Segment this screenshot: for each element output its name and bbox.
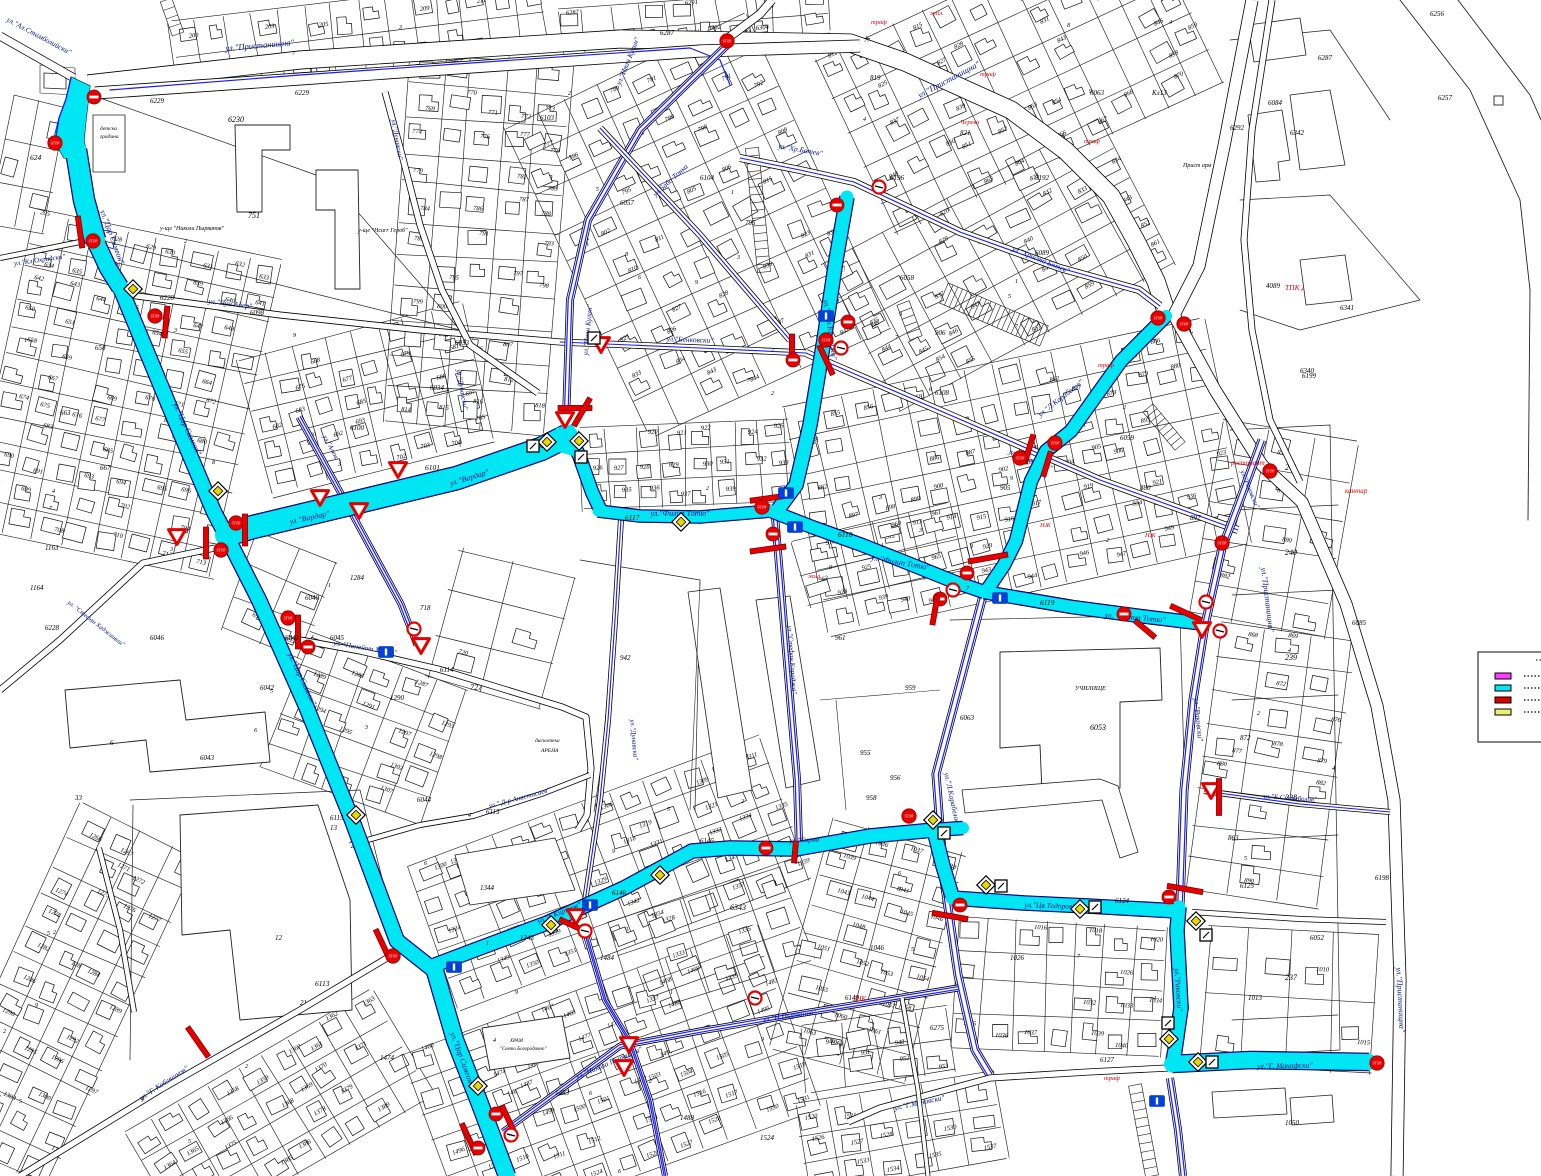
svg-text:6053: 6053 bbox=[1090, 723, 1106, 732]
svg-text:929: 929 bbox=[669, 461, 680, 469]
svg-text:1050: 1050 bbox=[1285, 1119, 1300, 1127]
svg-text:786: 786 bbox=[473, 205, 484, 213]
svg-text:718: 718 bbox=[420, 604, 431, 612]
svg-text:897: 897 bbox=[1190, 514, 1201, 522]
svg-text:787: 787 bbox=[519, 196, 530, 204]
svg-text:4: 4 bbox=[863, 116, 866, 123]
svg-text:4: 4 bbox=[1332, 765, 1335, 772]
svg-text:906: 906 bbox=[935, 329, 946, 337]
svg-text:3: 3 bbox=[169, 547, 173, 553]
svg-text:799: 799 bbox=[413, 298, 424, 306]
svg-text:6: 6 bbox=[618, 1169, 621, 1175]
svg-text:928: 928 bbox=[640, 463, 651, 471]
svg-text:3: 3 bbox=[173, 328, 177, 334]
svg-text:769: 769 bbox=[425, 105, 436, 113]
svg-text:НЖ: НЖ bbox=[1144, 532, 1157, 539]
svg-text:6: 6 bbox=[638, 275, 641, 281]
svg-text:6291: 6291 bbox=[685, 0, 699, 7]
svg-text:ул."Цв.Тодоров": ул."Цв.Тодоров" bbox=[1023, 900, 1076, 911]
svg-text:STOP: STOP bbox=[1016, 457, 1025, 461]
svg-text:6: 6 bbox=[110, 739, 114, 747]
svg-text:1: 1 bbox=[486, 941, 489, 947]
svg-text:8: 8 bbox=[1067, 23, 1070, 29]
svg-text:1483: 1483 bbox=[555, 1089, 570, 1097]
svg-text:926: 926 bbox=[593, 464, 604, 472]
svg-text:6044: 6044 bbox=[417, 796, 432, 804]
svg-text:13: 13 bbox=[330, 824, 338, 832]
svg-text:927: 927 bbox=[614, 464, 625, 472]
svg-text:STOP: STOP bbox=[217, 549, 226, 553]
svg-text:3: 3 bbox=[918, 528, 922, 534]
svg-text:АРЕНА: АРЕНА bbox=[540, 748, 559, 754]
svg-text:877: 877 bbox=[1232, 747, 1243, 755]
svg-text:905: 905 bbox=[1000, 484, 1011, 492]
svg-text:8: 8 bbox=[463, 339, 466, 345]
svg-text:922: 922 bbox=[701, 424, 712, 432]
svg-text:ул."Г. Манафски": ул."Г. Манафски" bbox=[1256, 1061, 1313, 1071]
svg-text:9: 9 bbox=[1089, 89, 1092, 95]
svg-text:815: 815 bbox=[439, 404, 450, 412]
svg-text:6124: 6124 bbox=[1115, 897, 1130, 905]
svg-text:776: 776 bbox=[480, 133, 491, 141]
svg-text:3: 3 bbox=[878, 495, 882, 501]
svg-text:1: 1 bbox=[881, 543, 884, 549]
svg-text:667: 667 bbox=[100, 464, 111, 472]
svg-text:6146: 6146 bbox=[612, 889, 627, 897]
svg-text:1026: 1026 bbox=[1120, 969, 1134, 977]
svg-text:1284: 1284 bbox=[350, 574, 365, 582]
svg-text:961: 961 bbox=[835, 634, 846, 642]
svg-text:937: 937 bbox=[681, 490, 692, 498]
svg-text:658: 658 bbox=[95, 344, 106, 352]
svg-text:6041: 6041 bbox=[285, 634, 299, 642]
svg-text:6292: 6292 bbox=[1230, 124, 1245, 132]
svg-text:STOP: STOP bbox=[284, 617, 293, 621]
svg-text:6108: 6108 bbox=[935, 389, 950, 397]
svg-text:239: 239 bbox=[1285, 653, 1297, 662]
svg-text:2: 2 bbox=[649, 1079, 652, 1085]
svg-text:1488: 1488 bbox=[680, 1114, 695, 1122]
svg-text:1013: 1013 bbox=[1248, 994, 1263, 1002]
svg-text:2: 2 bbox=[184, 239, 187, 245]
svg-text:STOP: STOP bbox=[151, 315, 160, 319]
svg-text:3: 3 bbox=[364, 725, 368, 731]
svg-text:STOP: STOP bbox=[89, 240, 98, 244]
svg-text:1033: 1033 bbox=[1120, 1002, 1134, 1010]
svg-text:STOP: STOP bbox=[1154, 317, 1163, 321]
svg-text:1039: 1039 bbox=[1091, 1030, 1105, 1038]
svg-text:1016: 1016 bbox=[1034, 924, 1048, 932]
svg-text:9: 9 bbox=[35, 1003, 38, 1009]
svg-text:879: 879 bbox=[1317, 757, 1328, 765]
svg-text:951: 951 bbox=[860, 1049, 871, 1057]
svg-text:6229: 6229 bbox=[150, 97, 165, 105]
svg-text:6098: 6098 bbox=[250, 309, 265, 317]
svg-text:798: 798 bbox=[539, 282, 550, 290]
svg-text:STOP: STOP bbox=[723, 40, 732, 44]
svg-text:6127: 6127 bbox=[1100, 1056, 1115, 1064]
svg-text:6275: 6275 bbox=[930, 1024, 945, 1032]
svg-text:6043: 6043 bbox=[200, 754, 215, 762]
svg-text:8: 8 bbox=[164, 418, 167, 424]
svg-text:6119: 6119 bbox=[1040, 598, 1055, 607]
svg-text:779: 779 bbox=[413, 167, 424, 175]
svg-text:33: 33 bbox=[74, 794, 83, 802]
svg-text:Кл13: Кл13 bbox=[1151, 89, 1167, 97]
svg-text:4089: 4089 bbox=[1266, 282, 1281, 290]
svg-text:2: 2 bbox=[1123, 405, 1126, 411]
svg-text:2: 2 bbox=[741, 799, 744, 805]
svg-text:5: 5 bbox=[270, 689, 273, 695]
svg-text:958: 958 bbox=[866, 794, 877, 802]
svg-text:жил.: жил. bbox=[930, 10, 944, 17]
svg-text:6: 6 bbox=[589, 1091, 592, 1097]
svg-text:6343: 6343 bbox=[730, 903, 746, 912]
svg-text:1474: 1474 bbox=[380, 1054, 395, 1062]
svg-text:9: 9 bbox=[293, 333, 296, 339]
svg-text:траф: траф bbox=[980, 71, 996, 78]
svg-text:6: 6 bbox=[424, 861, 427, 867]
svg-text:6196: 6196 bbox=[890, 174, 905, 182]
svg-text:1026: 1026 bbox=[1010, 954, 1025, 962]
svg-text:931: 931 bbox=[720, 458, 730, 466]
svg-text:5: 5 bbox=[667, 807, 670, 813]
svg-text:траф: траф bbox=[1098, 362, 1114, 369]
svg-text:траф: траф bbox=[1104, 1075, 1120, 1082]
svg-text:5: 5 bbox=[1244, 856, 1247, 862]
svg-text:771: 771 bbox=[488, 109, 498, 117]
svg-text:траф: траф bbox=[871, 19, 887, 26]
svg-text:932: 932 bbox=[757, 455, 768, 463]
svg-text:1: 1 bbox=[24, 338, 27, 344]
svg-text:6256: 6256 bbox=[1430, 10, 1445, 18]
svg-text:1484: 1484 bbox=[600, 954, 615, 962]
svg-text:872: 872 bbox=[1240, 734, 1251, 742]
svg-text:939: 939 bbox=[726, 485, 737, 493]
svg-text:6287: 6287 bbox=[660, 29, 675, 37]
svg-text:4: 4 bbox=[493, 1037, 496, 1044]
svg-text:882: 882 bbox=[1316, 779, 1327, 787]
svg-text:ресторант: ресторант bbox=[1230, 459, 1265, 467]
svg-text:770: 770 bbox=[467, 89, 478, 97]
svg-text:Прист арм: Прист арм bbox=[1182, 163, 1212, 169]
svg-text:6113: 6113 bbox=[315, 979, 330, 988]
svg-text:9192: 9192 bbox=[1035, 174, 1050, 182]
svg-text:953: 953 bbox=[938, 1063, 949, 1071]
svg-text:Черева: Черева bbox=[960, 119, 980, 126]
svg-text:1010: 1010 bbox=[1316, 966, 1330, 974]
svg-text:1032: 1032 bbox=[1083, 999, 1097, 1007]
svg-text:4: 4 bbox=[1169, 19, 1172, 26]
svg-text:9: 9 bbox=[829, 565, 832, 571]
svg-text:797: 797 bbox=[513, 270, 524, 278]
svg-text:936: 936 bbox=[650, 484, 661, 492]
svg-text:942: 942 bbox=[620, 654, 631, 662]
svg-text:863: 863 bbox=[1228, 834, 1239, 842]
svg-text:6058: 6058 bbox=[900, 274, 915, 282]
svg-text:880: 880 bbox=[1140, 484, 1151, 492]
svg-text:6: 6 bbox=[929, 387, 932, 393]
svg-text:6084: 6084 bbox=[1268, 99, 1283, 107]
svg-text:948: 948 bbox=[894, 1039, 905, 1047]
svg-text:880: 880 bbox=[1217, 760, 1228, 768]
svg-text:795: 795 bbox=[745, 219, 756, 227]
svg-text:868: 868 bbox=[1248, 631, 1259, 639]
svg-text:237: 237 bbox=[1285, 973, 1298, 982]
svg-text:4: 4 bbox=[1153, 995, 1156, 1002]
svg-text:793: 793 bbox=[544, 240, 555, 248]
svg-text:4: 4 bbox=[52, 488, 55, 495]
svg-text:821: 821 bbox=[960, 129, 971, 137]
svg-text:209: 209 bbox=[419, 5, 430, 13]
svg-text:НЖ: НЖ bbox=[1039, 522, 1052, 529]
svg-text:933: 933 bbox=[779, 459, 790, 467]
svg-text:6118: 6118 bbox=[838, 530, 853, 539]
svg-text:6115: 6115 bbox=[330, 814, 344, 822]
svg-text:у-ще "Нcurr Героб": у-ще "Нcurr Героб" bbox=[357, 227, 408, 234]
svg-text:751: 751 bbox=[248, 211, 260, 220]
svg-text:2: 2 bbox=[1257, 711, 1260, 717]
svg-text:818: 818 bbox=[535, 402, 546, 410]
svg-text:9: 9 bbox=[970, 544, 973, 550]
svg-text:6040: 6040 bbox=[305, 594, 320, 602]
svg-text:924: 924 bbox=[748, 428, 759, 436]
svg-text:4: 4 bbox=[141, 1096, 144, 1103]
svg-text:6100: 6100 bbox=[350, 424, 365, 432]
svg-text:921: 921 bbox=[677, 429, 687, 437]
svg-text:5: 5 bbox=[19, 1099, 22, 1105]
svg-text:203: 203 bbox=[264, 23, 275, 31]
svg-text:6114: 6114 bbox=[440, 666, 454, 674]
svg-text:624: 624 bbox=[30, 153, 42, 162]
svg-text:9: 9 bbox=[1010, 476, 1013, 482]
svg-text:782: 782 bbox=[517, 173, 528, 181]
svg-text:1015: 1015 bbox=[1357, 1039, 1371, 1047]
svg-text:1046: 1046 bbox=[870, 944, 885, 952]
svg-text:5: 5 bbox=[47, 931, 50, 937]
svg-text:6034: 6034 bbox=[430, 384, 445, 392]
svg-text:STOP: STOP bbox=[1373, 1062, 1382, 1066]
svg-text:2: 2 bbox=[706, 486, 709, 492]
svg-text:3: 3 bbox=[337, 462, 341, 468]
svg-text:1163: 1163 bbox=[45, 544, 59, 552]
svg-text:жил: жил bbox=[808, 573, 820, 580]
svg-text:градина: градина bbox=[100, 133, 119, 140]
svg-text:1: 1 bbox=[670, 990, 673, 996]
svg-text:6342: 6342 bbox=[1290, 129, 1305, 137]
svg-text:6: 6 bbox=[898, 871, 901, 877]
svg-text:STOP: STOP bbox=[389, 955, 398, 959]
svg-text:791: 791 bbox=[479, 230, 489, 238]
svg-text:816: 816 bbox=[473, 398, 484, 406]
svg-text:878: 878 bbox=[1273, 740, 1284, 748]
svg-text:12: 12 bbox=[275, 934, 283, 942]
svg-text:6063: 6063 bbox=[960, 714, 975, 722]
svg-text:детска: детска bbox=[100, 125, 117, 132]
svg-text:956: 956 bbox=[890, 774, 901, 782]
svg-text:5: 5 bbox=[596, 187, 599, 193]
svg-text:1040: 1040 bbox=[1115, 1042, 1129, 1050]
svg-text:925: 925 bbox=[774, 422, 785, 430]
svg-text:1344: 1344 bbox=[480, 884, 495, 892]
svg-text:6052: 6052 bbox=[1310, 934, 1325, 942]
svg-text:6057: 6057 bbox=[620, 199, 635, 207]
svg-text:5: 5 bbox=[1008, 294, 1011, 300]
svg-text:946: 946 bbox=[825, 1038, 836, 1046]
svg-text:1290: 1290 bbox=[390, 694, 405, 702]
svg-text:STOP: STOP bbox=[822, 339, 831, 343]
svg-text:8: 8 bbox=[625, 252, 628, 258]
svg-text:9: 9 bbox=[515, 990, 518, 996]
svg-text:1: 1 bbox=[731, 190, 734, 196]
svg-text:6230: 6230 bbox=[228, 115, 244, 124]
svg-text:3: 3 bbox=[736, 255, 740, 261]
svg-text:8: 8 bbox=[212, 460, 215, 466]
svg-text:2: 2 bbox=[1106, 538, 1109, 544]
svg-text:6046: 6046 bbox=[150, 634, 165, 642]
svg-text:6198: 6198 bbox=[1375, 874, 1390, 882]
svg-text:2НК: 2НК bbox=[853, 995, 867, 1003]
svg-text:959: 959 bbox=[905, 684, 916, 692]
svg-text:788: 788 bbox=[541, 210, 552, 218]
svg-text:869: 869 bbox=[1288, 632, 1299, 640]
svg-text:1018: 1018 bbox=[1089, 927, 1103, 935]
svg-text:дискотека: дискотека bbox=[535, 737, 560, 744]
svg-text:205: 205 bbox=[318, 21, 329, 29]
svg-text:STOP: STOP bbox=[758, 506, 767, 510]
svg-text:819: 819 bbox=[870, 74, 881, 82]
svg-text:814: 814 bbox=[401, 406, 412, 414]
svg-text:5: 5 bbox=[911, 947, 914, 953]
svg-text:9: 9 bbox=[695, 280, 698, 286]
svg-text:1020: 1020 bbox=[1150, 936, 1164, 944]
svg-text:1343: 1343 bbox=[520, 934, 535, 942]
svg-text:4: 4 bbox=[468, 812, 471, 819]
svg-text:6341: 6341 bbox=[1340, 304, 1354, 312]
svg-text:2: 2 bbox=[3, 1029, 6, 1035]
svg-text:930: 930 bbox=[703, 460, 714, 468]
svg-text:1: 1 bbox=[1015, 279, 1018, 285]
svg-text:STOP: STOP bbox=[1051, 442, 1060, 446]
svg-text:6059: 6059 bbox=[1120, 434, 1135, 442]
svg-text:ул."Бенковски": ул."Бенковски" bbox=[666, 334, 715, 345]
svg-text:955: 955 bbox=[860, 749, 871, 757]
svg-text:795: 795 bbox=[449, 274, 460, 282]
svg-text:663: 663 bbox=[60, 409, 71, 417]
svg-text:774: 774 bbox=[412, 128, 423, 136]
svg-text:кантар: кантар bbox=[1345, 487, 1368, 495]
svg-text:1524: 1524 bbox=[760, 1134, 775, 1142]
svg-text:6: 6 bbox=[254, 728, 257, 734]
svg-text:807: 807 bbox=[503, 341, 514, 349]
svg-text:784: 784 bbox=[420, 205, 431, 213]
svg-text:4: 4 bbox=[1288, 647, 1291, 654]
svg-text:УЧИЛИЩЕ: УЧИЛИЩЕ bbox=[1075, 686, 1106, 692]
svg-text:STOP: STOP bbox=[1180, 323, 1189, 327]
svg-text:6287: 6287 bbox=[566, 9, 580, 17]
svg-text:6104: 6104 bbox=[700, 174, 715, 182]
svg-text:240: 240 bbox=[1285, 548, 1297, 557]
svg-text:1036: 1036 bbox=[995, 1032, 1009, 1040]
svg-text:6089: 6089 bbox=[1035, 249, 1050, 257]
svg-text:6257: 6257 bbox=[1438, 94, 1453, 102]
svg-text:2: 2 bbox=[771, 391, 774, 397]
svg-text:6085: 6085 bbox=[1352, 619, 1367, 627]
svg-text:6229: 6229 bbox=[295, 89, 310, 97]
svg-text:2: 2 bbox=[568, 91, 571, 97]
svg-text:2: 2 bbox=[245, 1064, 248, 1070]
svg-text:STOP: STOP bbox=[905, 815, 914, 819]
svg-text:952: 952 bbox=[899, 1055, 910, 1063]
svg-text:6145: 6145 bbox=[700, 837, 715, 845]
svg-text:6063: 6063 bbox=[1090, 89, 1105, 97]
svg-text:STOP: STOP bbox=[232, 522, 241, 526]
svg-text:9: 9 bbox=[761, 1037, 764, 1043]
svg-text:STOP: STOP bbox=[1218, 542, 1227, 546]
svg-text:935: 935 bbox=[622, 486, 633, 494]
svg-text:876: 876 bbox=[1331, 716, 1342, 724]
svg-text:STOP: STOP bbox=[1266, 470, 1275, 474]
svg-text:ХРАМ: ХРАМ bbox=[509, 1039, 524, 1044]
svg-text:920: 920 bbox=[648, 428, 659, 436]
svg-text:1037: 1037 bbox=[1024, 1029, 1038, 1037]
svg-text:1: 1 bbox=[328, 583, 331, 589]
svg-text:872: 872 bbox=[1276, 680, 1287, 688]
svg-text:6117: 6117 bbox=[625, 513, 640, 522]
svg-text:у-ще "Никола Пырванов": у-ще "Никола Пырванов" bbox=[159, 226, 225, 232]
svg-text:5: 5 bbox=[188, 1139, 191, 1145]
svg-text:6228: 6228 bbox=[160, 294, 175, 302]
svg-text:6228: 6228 bbox=[45, 624, 60, 632]
svg-text:6199: 6199 bbox=[1302, 372, 1317, 380]
svg-text:200: 200 bbox=[188, 32, 199, 40]
svg-text:2: 2 bbox=[53, 930, 56, 936]
svg-text:6304: 6304 bbox=[756, 24, 770, 32]
svg-text:STOP: STOP bbox=[51, 142, 60, 146]
svg-text:3: 3 bbox=[398, 25, 402, 31]
svg-text:6125: 6125 bbox=[1240, 882, 1255, 890]
svg-text:6103: 6103 bbox=[540, 114, 555, 122]
svg-text:9: 9 bbox=[612, 849, 615, 855]
svg-text:1164: 1164 bbox=[30, 584, 44, 592]
svg-text:6287: 6287 bbox=[1318, 54, 1333, 62]
svg-text:"Свето Богородично": "Свето Богородично" bbox=[500, 1047, 547, 1052]
svg-text:траф: траф bbox=[1084, 138, 1100, 145]
svg-text:9: 9 bbox=[899, 312, 902, 318]
svg-text:6101: 6101 bbox=[425, 463, 440, 472]
